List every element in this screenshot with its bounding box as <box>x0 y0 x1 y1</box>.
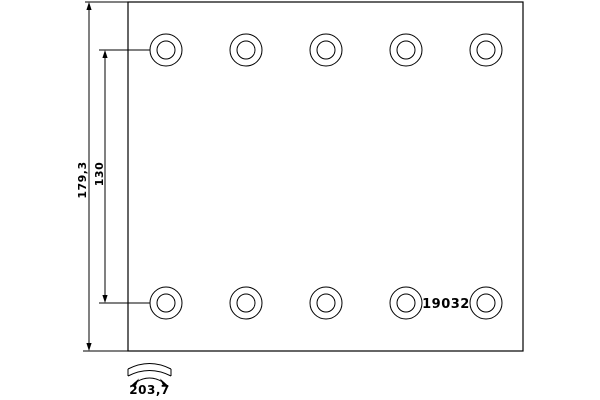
arrowhead-up-icon <box>102 50 107 58</box>
rivet-hole-inner <box>477 294 495 312</box>
rivet-hole-inner <box>317 41 335 59</box>
arrowhead-up-icon <box>86 2 91 10</box>
cross-section-inner-arc <box>128 371 171 377</box>
brake-lining-technical-drawing: 179,3 130 203,7 19032 <box>0 0 600 400</box>
rivet-hole-outer <box>390 287 422 319</box>
rivet-hole-inner <box>237 294 255 312</box>
dimension-label-hole-spacing: 130 <box>93 162 106 186</box>
rivet-hole-inner <box>397 294 415 312</box>
rivet-hole-outer <box>150 287 182 319</box>
rivet-hole-inner <box>237 41 255 59</box>
rivet-holes <box>150 34 502 319</box>
arrowhead-down-icon <box>102 295 107 303</box>
drawing-canvas: 179,3 130 203,7 19032 <box>0 0 600 400</box>
rivet-hole-inner <box>157 294 175 312</box>
arrowhead-down-icon <box>86 343 91 351</box>
dimension-label-arc-width: 203,7 <box>129 383 169 397</box>
rivet-hole-outer <box>310 287 342 319</box>
rivet-hole-inner <box>157 41 175 59</box>
cross-section-outer-arc <box>128 364 171 370</box>
rivet-hole-inner <box>317 294 335 312</box>
rivet-hole-outer <box>390 34 422 66</box>
rivet-hole-inner <box>477 41 495 59</box>
dimension-label-height: 179,3 <box>76 161 89 198</box>
part-number-label: 19032 <box>422 297 470 312</box>
rivet-hole-outer <box>230 34 262 66</box>
rivet-hole-outer <box>470 287 502 319</box>
rivet-hole-inner <box>397 41 415 59</box>
rivet-hole-outer <box>470 34 502 66</box>
rivet-hole-outer <box>310 34 342 66</box>
rivet-hole-outer <box>230 287 262 319</box>
rivet-hole-outer <box>150 34 182 66</box>
